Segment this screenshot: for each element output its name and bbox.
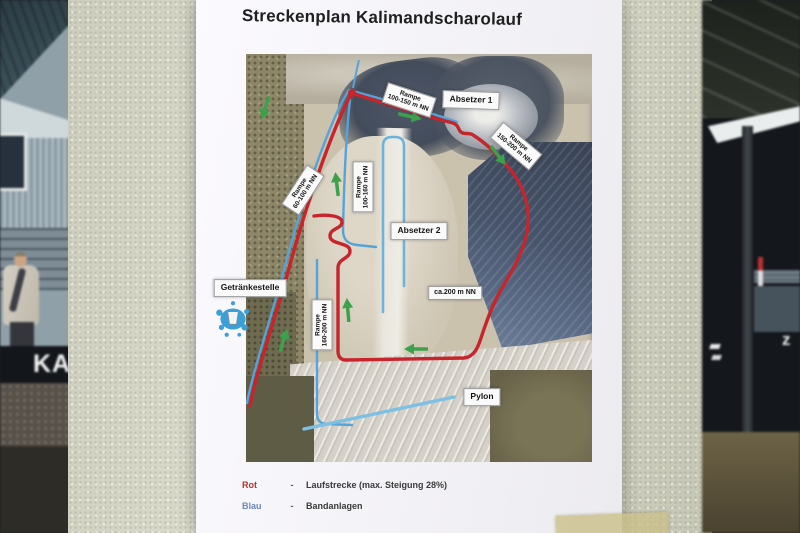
label-line: Rampe [356, 166, 363, 209]
start-marker [348, 89, 356, 97]
label-line: 100-160 m NN [363, 166, 370, 209]
legend-description: Bandanlagen [306, 501, 363, 511]
legend-dash: - [278, 480, 306, 490]
floor-patch [754, 286, 800, 332]
background-right: z [702, 0, 800, 533]
direction-arrow [341, 298, 354, 323]
label-pylon: Pylon [463, 388, 500, 406]
person-head [14, 252, 27, 267]
support-post [742, 126, 753, 456]
label-line: ca.200 m NN [434, 289, 476, 297]
label-rampe-100-160: Rampe 100-160 m NN [353, 162, 374, 213]
water-splash-icon [212, 298, 254, 340]
label-line: Getränkestelle [221, 283, 280, 293]
direction-arrow [330, 171, 344, 196]
legend-color-name: Blau [242, 501, 278, 511]
legend-color-name: Rot [242, 480, 278, 490]
label-rampe-160-200: Rampe 160-200 m NN [312, 300, 333, 351]
route-overlay [246, 54, 592, 462]
direction-arrow [275, 327, 293, 353]
ground-right [702, 432, 800, 533]
poster: Streckenplan Kalimandscharolauf [196, 0, 622, 533]
label-absetzer-2: Absetzer 2 [391, 222, 448, 240]
label-absetzer-1: Absetzer 1 [442, 90, 500, 110]
background-left: KA [0, 0, 70, 533]
conveyor-line-pylon [304, 397, 454, 429]
photo-scene: KA z Streckenplan Kalimandscharolauf [0, 0, 800, 533]
label-line: Pylon [470, 392, 493, 402]
running-route-diagonal [250, 93, 352, 406]
white-mark [711, 355, 722, 360]
label-line: Rampe [315, 304, 322, 347]
label-line: 160-200 m NN [322, 304, 329, 347]
background-banner: KA [0, 346, 70, 383]
direction-arrow [404, 344, 428, 355]
legend-description: Laufstrecke (max. Steigung 28%) [306, 480, 447, 490]
ground-left-dark [0, 446, 70, 533]
legend-row-blue: Blau - Bandanlagen [242, 501, 363, 511]
canopy-roof-right [702, 0, 800, 118]
background-letter: z [782, 330, 791, 350]
legend-row-red: Rot - Laufstrecke (max. Steigung 28%) [242, 480, 447, 490]
direction-arrow [256, 95, 274, 121]
adhesive-tape [556, 512, 669, 533]
label-line: Absetzer 2 [398, 226, 441, 236]
aerial-photo [246, 54, 592, 462]
label-getraenkestelle: Getränkestelle [214, 279, 287, 297]
legend-dash: - [278, 501, 306, 511]
label-ca-200: ca.200 m NN [428, 286, 482, 300]
white-mark [709, 344, 721, 349]
window-opening [0, 133, 27, 191]
label-line: Absetzer 1 [449, 94, 492, 105]
ground-left [0, 383, 70, 446]
poster-title: Streckenplan Kalimandscharolauf [232, 6, 532, 30]
conveyor-line-spur [353, 60, 359, 88]
